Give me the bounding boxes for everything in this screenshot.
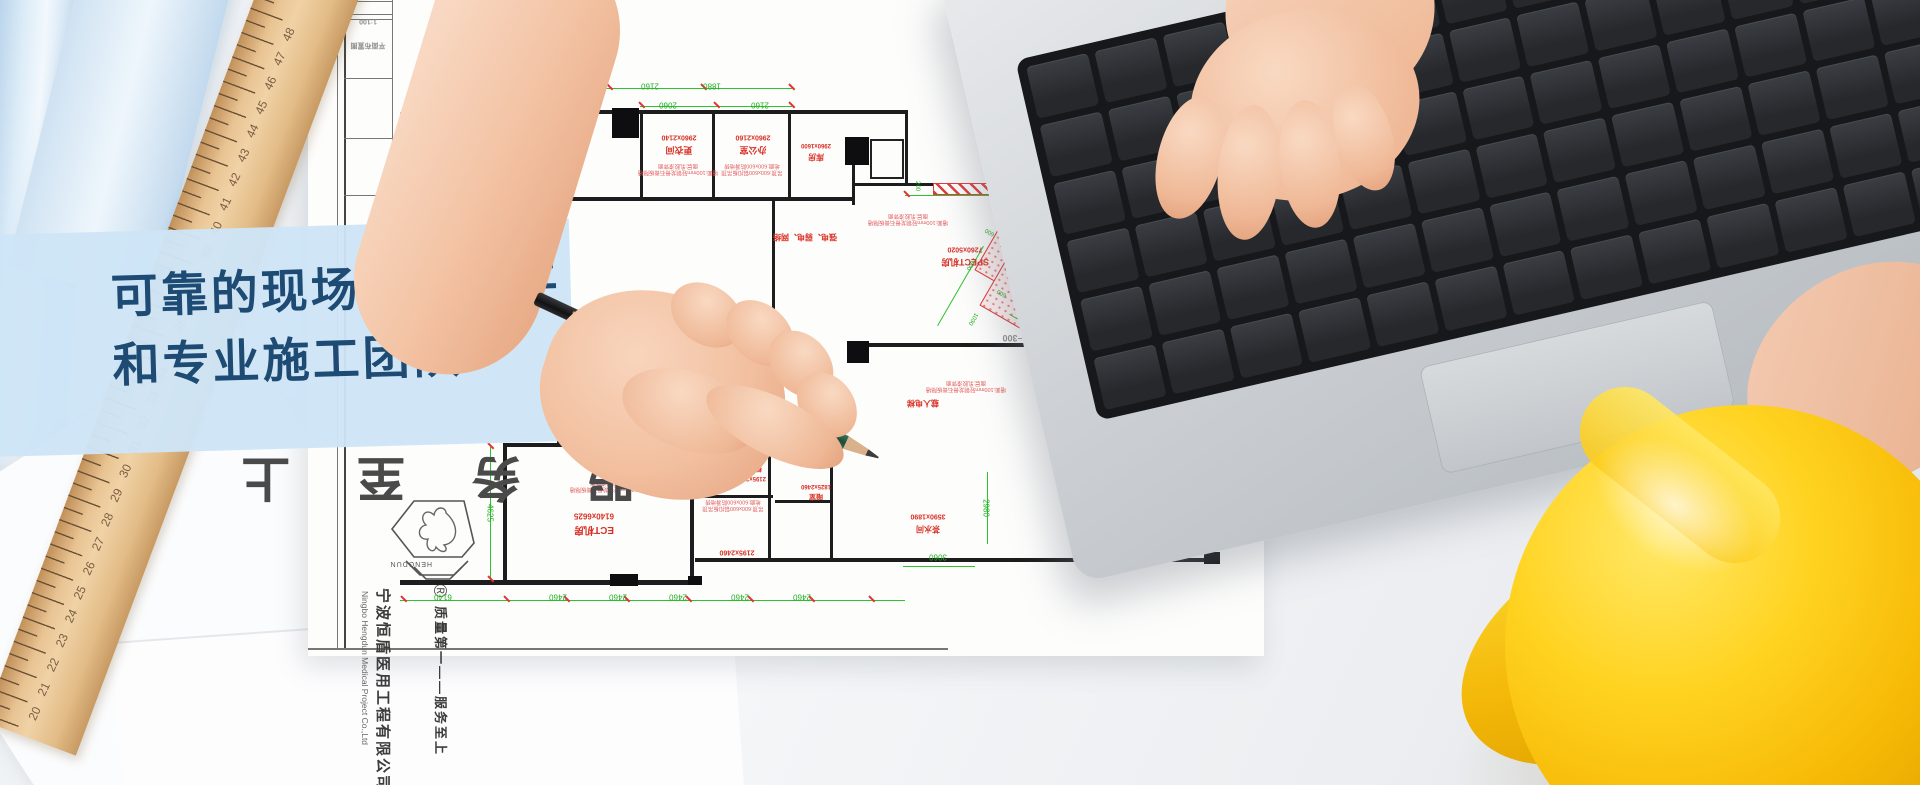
ruler-number: 20 [25, 704, 43, 722]
plan-annotation: 墙面:100mm轻钢龙骨石膏板隔墙 面层:乳胶漆饰面 [926, 379, 1006, 392]
plan-annotation: 1:100 [359, 17, 377, 25]
keyboard-key [1816, 55, 1889, 121]
keyboard-key [1148, 270, 1221, 336]
keyboard-key [1475, 133, 1548, 199]
plan-annotation: 2460 [793, 591, 811, 601]
keyboard-key [1434, 266, 1507, 332]
plan-annotation: 1880 [703, 80, 721, 90]
plan-annotation: 载人电梯 [907, 397, 939, 407]
ruler-number: 48 [279, 25, 297, 43]
keyboard-key [1421, 207, 1494, 273]
plan-annotation: 吊顶:600x600铝扣板吊顶 地面:600x600防滑地砖 [721, 162, 782, 175]
keyboard-key [1543, 118, 1616, 184]
plan-annotation: 办公室 [740, 144, 767, 155]
keyboard-key [1802, 0, 1875, 62]
ruler-number: 42 [225, 171, 243, 189]
keyboard-key [1775, 187, 1848, 253]
ruler-number: 25 [71, 583, 89, 601]
keyboard-key [1693, 145, 1766, 211]
keyboard-key [1448, 17, 1521, 83]
plan-annotation: 更衣间 [666, 144, 693, 155]
plan-annotation: 吊顶:600x600铝扣板吊顶 地面:600x600防滑地砖 [702, 498, 763, 511]
keyboard-key [1161, 329, 1234, 395]
keyboard-key [1871, 0, 1920, 46]
plan-annotation: ECT机房 [574, 523, 614, 535]
plan-annotation: 库房 [808, 151, 824, 161]
keyboard-key [1093, 344, 1166, 410]
plan-annotation: 6140x6625 [574, 510, 614, 520]
plan-annotation: 2460 [609, 591, 627, 601]
plan-annotation: 茶水间 [916, 523, 940, 533]
keyboard-key [1040, 111, 1113, 177]
ruler-number: 45 [252, 98, 270, 116]
keyboard-key [1666, 28, 1739, 94]
ruler-number: 29 [107, 486, 125, 504]
plan-annotation: 暗室 [809, 492, 823, 500]
plan-annotation: 300 [1002, 332, 1017, 343]
keyboard-key [1585, 0, 1658, 51]
plan-annotation: 墙面:100mm轻钢龙骨石膏板隔墙 面层:乳胶漆饰面 [638, 162, 718, 175]
keyboard-key [1026, 53, 1099, 119]
plan-annotation: 2160 [641, 80, 659, 90]
keyboard-key [1502, 250, 1575, 316]
keyboard-key [1230, 313, 1303, 379]
keyboard-key [1066, 228, 1139, 294]
plan-annotation: 6140 [434, 591, 452, 601]
plan-annotation: 2960x1600 [801, 141, 831, 148]
plan-annotation: 7260x5020 [947, 245, 982, 253]
ruler-number: 27 [89, 535, 107, 553]
plan-annotation: 2195x2460 [719, 548, 754, 556]
keyboard-key [1298, 297, 1371, 363]
keyboard-key [1080, 286, 1153, 352]
ruler-number: 47 [270, 49, 288, 67]
ruler-number: 24 [62, 607, 80, 625]
keyboard-key [1638, 219, 1711, 285]
ruler-number: 43 [234, 146, 252, 164]
keyboard-key [1570, 234, 1643, 300]
keyboard-key [1462, 75, 1535, 141]
keyboard-key [1053, 170, 1126, 236]
keyboard-key [1407, 149, 1480, 215]
plan-annotation: 墙面:100mm轻钢龙骨石膏板隔墙 面层:乳胶漆饰面 [868, 212, 948, 225]
keyboard-key [1680, 86, 1753, 152]
plan-annotation: 平面布置图 [351, 41, 386, 49]
keyboard-key [1707, 203, 1780, 269]
ruler-number: 22 [44, 656, 62, 674]
keyboard-key [1557, 176, 1630, 242]
plan-annotation: SPECT机房 [941, 256, 989, 267]
keyboard-key [1625, 160, 1698, 226]
keyboard-key [1135, 212, 1208, 278]
plan-annotation: 2460 [549, 591, 567, 601]
keyboard-key [1216, 255, 1289, 321]
keyboard-key [1884, 39, 1920, 105]
keyboard-key [1898, 97, 1920, 163]
elevator-shaft [870, 139, 904, 179]
pencil-lead [865, 449, 880, 461]
ruler-number: 26 [80, 559, 98, 577]
ruler-number: 41 [216, 195, 234, 213]
ruler-number: 30 [116, 462, 134, 480]
keyboard-key [1761, 129, 1834, 195]
plan-annotation: 强电、弱电、网络 [773, 231, 837, 241]
plan-annotation: 2060 [659, 99, 677, 109]
ruler-number: 46 [261, 74, 279, 92]
keyboard-key [1530, 59, 1603, 125]
ruler-number: 44 [243, 122, 261, 140]
plan-annotation: 2960x2160 [735, 133, 770, 141]
plan-annotation: 2460 [731, 591, 749, 601]
plan-annotation: 2960x2140 [661, 133, 696, 141]
plan-annotation: 200 [913, 181, 920, 191]
ruler-number: 23 [53, 632, 71, 650]
plan-annotation: 1825x2460 [801, 482, 831, 489]
keyboard-key [1748, 71, 1821, 137]
plan-annotation: 3590x1890 [910, 512, 945, 520]
keyboard-key [1094, 37, 1167, 103]
keyboard-key [1598, 44, 1671, 110]
keyboard-key [1366, 282, 1439, 348]
plan-annotation: 4625 [484, 504, 494, 522]
keyboard-key [1829, 113, 1902, 179]
keyboard-key [1352, 223, 1425, 289]
keyboard-key [1734, 12, 1807, 78]
keyboard-key [1284, 239, 1357, 305]
plan-annotation: 2460 [669, 591, 687, 601]
plan-annotation: 2980 [980, 499, 990, 517]
keyboard-key [1612, 102, 1685, 168]
keyboard-key [1843, 171, 1916, 237]
ruler-number: 21 [35, 680, 53, 698]
plan-annotation: 3060 [929, 551, 947, 561]
keyboard-key [1516, 1, 1589, 67]
plan-annotation: 2160 [751, 99, 769, 109]
ruler-number: 28 [98, 510, 116, 528]
keyboard-key [1489, 192, 1562, 258]
hero-banner: HENGDUN ® 质量第一——服务至上 宁波恒盾医用工程有限公司 Ningbo… [0, 0, 1920, 785]
